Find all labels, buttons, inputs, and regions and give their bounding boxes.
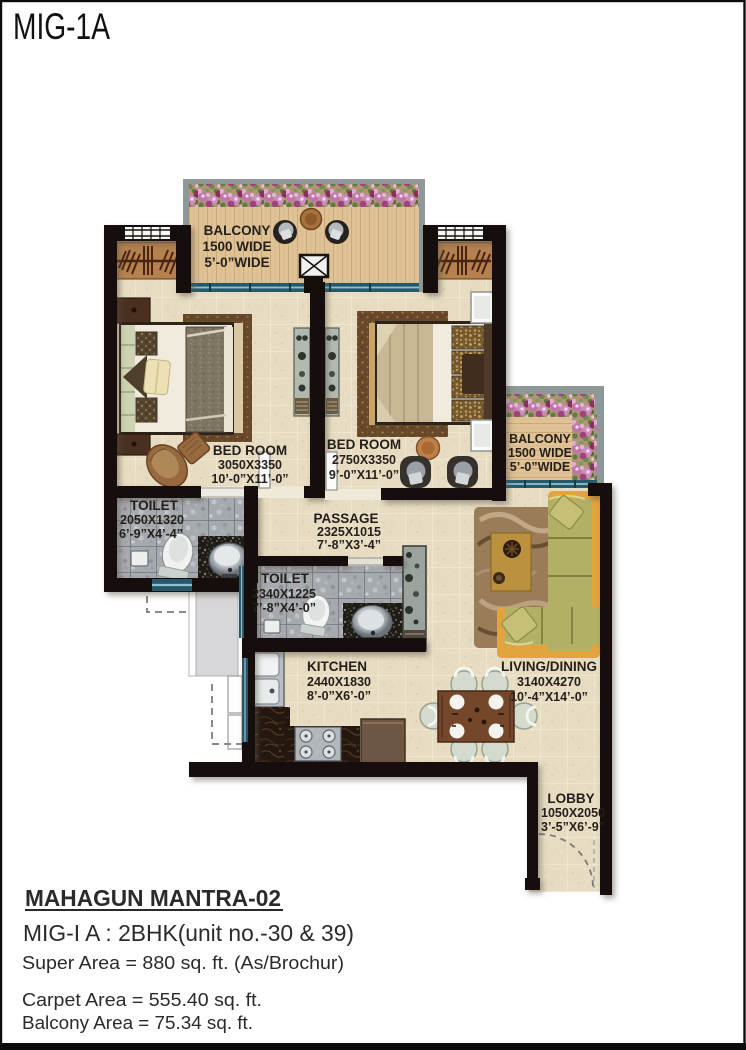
svg-text:Balcony Area = 75.34 sq. ft.: Balcony Area = 75.34 sq. ft. — [22, 1013, 253, 1033]
svg-text:PASSAGE: PASSAGE — [313, 511, 378, 526]
svg-text:7’-8”X3’-4”: 7’-8”X3’-4” — [317, 538, 381, 552]
svg-text:LIVING/DINING: LIVING/DINING — [501, 659, 597, 674]
svg-text:10’-4”X14’-0”: 10’-4”X14’-0” — [510, 690, 588, 704]
svg-text:KITCHEN: KITCHEN — [307, 659, 367, 674]
svg-text:3140X4270: 3140X4270 — [517, 675, 581, 689]
svg-text:2325X1015: 2325X1015 — [317, 525, 381, 539]
svg-text:3050X3350: 3050X3350 — [218, 458, 282, 472]
svg-text:MIG-I A : 2BHK(unit no.-30 & 3: MIG-I A : 2BHK(unit no.-30 & 39) — [23, 920, 354, 946]
svg-text:Super Area = 880 sq. ft. (A: Super Area = 880 sq. ft. (As/Brochur) — [22, 953, 344, 973]
svg-text:TOILET: TOILET — [130, 498, 179, 513]
svg-text:BED ROOM: BED ROOM — [213, 443, 287, 458]
svg-text:BALCONY: BALCONY — [509, 432, 571, 446]
svg-text:MIG-1A: MIG-1A — [13, 6, 110, 47]
svg-text:BED ROOM: BED ROOM — [327, 437, 401, 452]
svg-text:TOILET: TOILET — [261, 571, 310, 586]
svg-text:2340X1225: 2340X1225 — [252, 587, 316, 601]
svg-text:3’-5”X6’-9”: 3’-5”X6’-9” — [541, 820, 605, 834]
svg-text:LOBBY: LOBBY — [547, 791, 594, 806]
svg-text:1500 WIDE: 1500 WIDE — [202, 239, 271, 254]
svg-text:9’-0”X11’-0”: 9’-0”X11’-0” — [329, 468, 399, 482]
svg-text:7’-8”X4’-0”: 7’-8”X4’-0” — [252, 601, 316, 615]
svg-text:1050X2050: 1050X2050 — [541, 806, 605, 820]
svg-text:1500 WIDE: 1500 WIDE — [508, 446, 572, 460]
svg-text:MAHAGUN MANTRA-02: MAHAGUN MANTRA-02 — [25, 885, 281, 911]
svg-text:6’-9”X4’-4”: 6’-9”X4’-4” — [119, 527, 183, 541]
svg-text:8’-0”X6’-0”: 8’-0”X6’-0” — [307, 689, 371, 703]
svg-text:BALCONY: BALCONY — [204, 223, 271, 238]
svg-text:10’-0”X11’-0”: 10’-0”X11’-0” — [211, 472, 288, 486]
svg-text:5’-0”WIDE: 5’-0”WIDE — [510, 460, 570, 474]
svg-text:Carpet Area = 555.40 sq. ft.: Carpet Area = 555.40 sq. ft. — [22, 990, 262, 1010]
svg-text:2440X1830: 2440X1830 — [307, 675, 371, 689]
svg-text:2750X3350: 2750X3350 — [332, 453, 396, 467]
svg-text:5’-0”WIDE: 5’-0”WIDE — [204, 255, 269, 270]
svg-text:2050X1320: 2050X1320 — [120, 513, 184, 527]
